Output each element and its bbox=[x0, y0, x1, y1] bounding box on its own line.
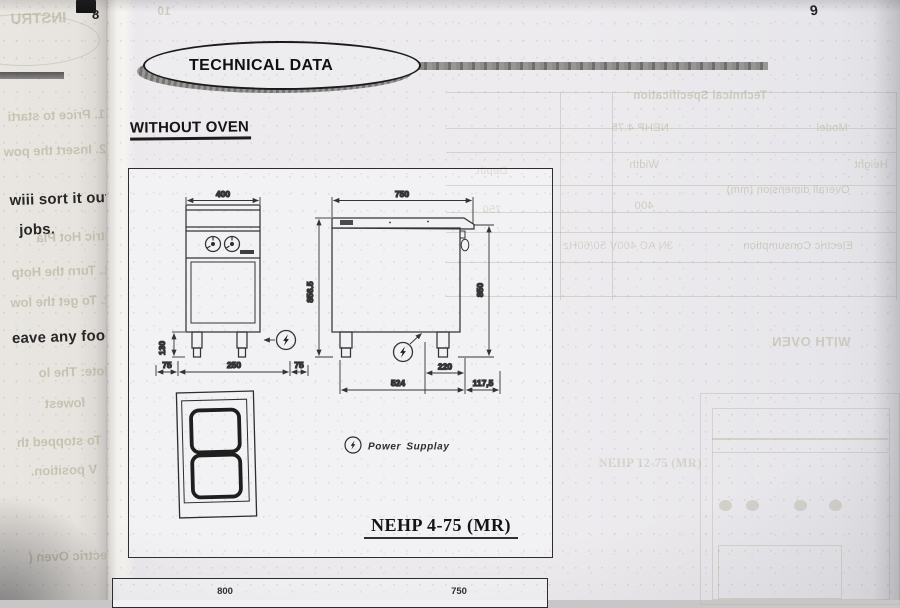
section-heading: WITHOUT OVEN bbox=[130, 118, 251, 140]
legend-label: Power Supplay bbox=[368, 442, 450, 453]
dim-label-400: 400 bbox=[216, 189, 230, 199]
ghost-overall-dim-label: Overall dimension (mm) bbox=[726, 184, 849, 196]
side-view: 750 856.5 850 220 bbox=[305, 189, 500, 394]
dim-label-75-left: 75 bbox=[162, 360, 172, 370]
front-view: 400 130 75 250 75 bbox=[156, 189, 308, 376]
lightning-bolt-icon bbox=[400, 346, 406, 357]
dim-side-bottom bbox=[340, 360, 500, 394]
next-figure-dim-750: 750 bbox=[451, 586, 467, 597]
ghost-oven-line bbox=[712, 452, 888, 453]
bleed-table-grid bbox=[560, 92, 561, 300]
ghost-oven-knob bbox=[794, 500, 807, 511]
next-figure-box: 800 750 bbox=[112, 578, 548, 608]
left-page-text-line: wiii sort it out bbox=[9, 189, 110, 209]
left-page-ghost-line: 1. Price to starti bbox=[8, 106, 106, 124]
dim-side-height-left bbox=[315, 218, 333, 357]
header-ellipse: TECHNICAL DATA bbox=[143, 41, 421, 90]
lightning-bolt-icon bbox=[351, 441, 356, 450]
top-view bbox=[176, 391, 256, 518]
figure-title-text: NEHP 4-75 (MR) bbox=[371, 515, 511, 536]
left-page-edge: 8 INSTRU 1. Price to starti 2. Insert th… bbox=[0, 0, 106, 600]
ghost-electric-value: 3N AC 400V 50/60Hz bbox=[563, 240, 673, 252]
dim-label-850: 850 bbox=[475, 283, 485, 297]
dim-label-750: 750 bbox=[395, 189, 409, 199]
hotplate-icon bbox=[192, 454, 241, 497]
top-plate-detail bbox=[340, 220, 353, 225]
page-title: TECHNICAL DATA bbox=[145, 43, 419, 88]
dim-label-75-right: 75 bbox=[294, 360, 304, 370]
ghost-oven-knob bbox=[746, 500, 759, 511]
ghost-oven-knob bbox=[719, 500, 732, 511]
left-page-ghost-line: INSTRU bbox=[10, 9, 66, 28]
ghost-oven-line bbox=[712, 438, 888, 440]
left-page-ghost-line: 2. To get the low bbox=[10, 292, 111, 310]
power-supply-symbol-side bbox=[394, 334, 422, 362]
ghost-model-value: NEHP 4.75 bbox=[611, 122, 669, 134]
lightning-bolt-icon bbox=[283, 334, 289, 345]
left-page-ghost-line: lowest bbox=[44, 395, 85, 411]
dim-label-117-5: 117,5 bbox=[473, 378, 494, 388]
main-page: 10 Technical Specification Model NEHP 4.… bbox=[106, 0, 900, 600]
dim-label-130: 130 bbox=[157, 341, 167, 355]
ghost-page-number: 10 bbox=[157, 4, 171, 18]
ghost-width-value: 400 bbox=[634, 200, 653, 212]
power-supply-legend: Power Supplay bbox=[345, 437, 450, 453]
dim-side-depth bbox=[332, 197, 473, 224]
left-page-ghost-line: V position. bbox=[30, 462, 97, 479]
control-knob-icon bbox=[225, 237, 240, 252]
dim-front-leg-height bbox=[172, 332, 185, 357]
rating-plate bbox=[240, 250, 254, 254]
power-supply-symbol-front bbox=[264, 331, 296, 350]
ghost-model-label: Model bbox=[816, 122, 847, 134]
left-page-ghost-line: Note: The lo bbox=[38, 363, 114, 380]
dim-label-220: 220 bbox=[438, 362, 452, 372]
ghost-with-oven-heading: WITH OVEN bbox=[771, 334, 850, 349]
ghost-height-label: Height bbox=[854, 159, 888, 171]
dim-label-250: 250 bbox=[227, 360, 241, 370]
technical-drawing: 400 130 75 250 75 bbox=[128, 168, 553, 558]
bleed-table-grid bbox=[446, 152, 897, 153]
left-page-text-line: eave any food bbox=[12, 327, 115, 347]
ghost-table-title: Technical Specification bbox=[633, 90, 767, 102]
next-figure-dim-800: 800 bbox=[217, 586, 233, 597]
ghost-oven-door bbox=[718, 545, 842, 599]
control-knob-icon bbox=[206, 237, 221, 252]
figure-title: NEHP 4-75 (MR) bbox=[364, 515, 518, 538]
ghost-oven-knob bbox=[829, 500, 842, 511]
left-page-ghost-line: 2. Insert the pow bbox=[4, 141, 107, 159]
ghost-electric-label: Electric Consumption bbox=[743, 240, 853, 252]
left-page-ghost-line: 3. To stopped th bbox=[16, 432, 116, 450]
dim-label-856-5: 856.5 bbox=[305, 281, 315, 303]
header-decorative-band bbox=[408, 62, 768, 70]
ghost-width-label: Width bbox=[629, 159, 659, 171]
bleed-table-grid bbox=[896, 92, 897, 300]
hotplate-icon bbox=[191, 409, 240, 452]
side-knob-icon bbox=[460, 231, 469, 251]
dim-label-524: 524 bbox=[391, 378, 405, 388]
left-page-ghost-line: 1. Turn the Hotp bbox=[12, 262, 111, 280]
ghost-next-figure-title: NEHP 12-75 (MR) bbox=[598, 456, 701, 471]
